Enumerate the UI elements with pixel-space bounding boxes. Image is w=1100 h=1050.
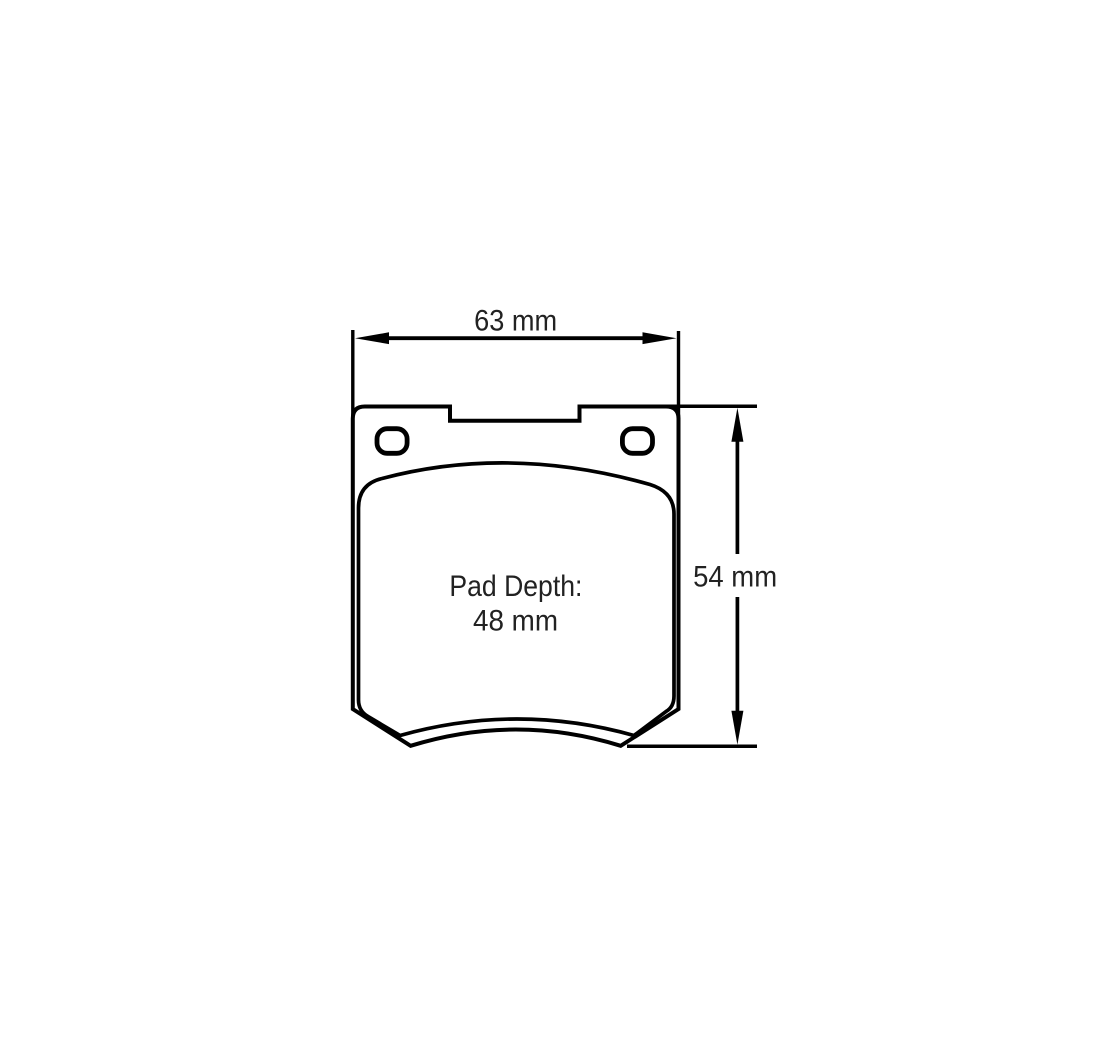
svg-text:Pad Depth:: Pad Depth: [449,570,582,603]
svg-text:54 mm: 54 mm [693,560,777,593]
svg-text:63 mm: 63 mm [474,304,557,337]
svg-text:48 mm: 48 mm [473,604,558,637]
